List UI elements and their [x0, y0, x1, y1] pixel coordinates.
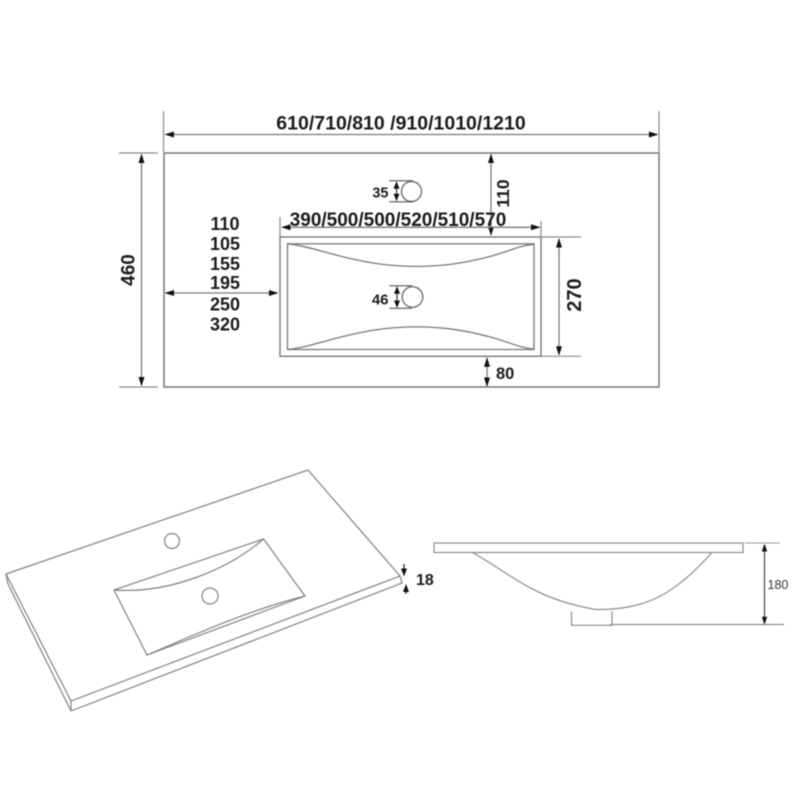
svg-text:610/710/810 /910/1010/1210: 610/710/810 /910/1010/1210 — [276, 113, 526, 135]
svg-text:390/500/500/520/510/570: 390/500/500/520/510/570 — [290, 210, 507, 231]
svg-text:195: 195 — [210, 273, 240, 293]
svg-text:155: 155 — [210, 254, 240, 274]
svg-text:270: 270 — [564, 278, 586, 311]
svg-text:180: 180 — [768, 578, 789, 592]
svg-text:105: 105 — [210, 234, 240, 254]
svg-text:18: 18 — [416, 572, 434, 589]
svg-text:250: 250 — [210, 295, 240, 315]
svg-text:80: 80 — [496, 365, 514, 383]
svg-text:320: 320 — [210, 315, 240, 335]
svg-text:46: 46 — [372, 292, 389, 309]
svg-text:110: 110 — [493, 179, 513, 207]
svg-text:35: 35 — [372, 186, 388, 202]
svg-text:460: 460 — [119, 254, 140, 286]
svg-text:110: 110 — [210, 214, 239, 234]
